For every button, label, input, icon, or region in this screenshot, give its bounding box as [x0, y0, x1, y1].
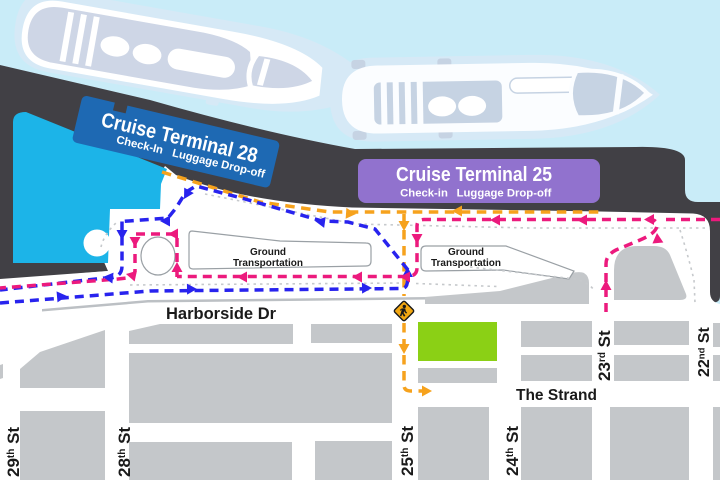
svg-text:Transportation: Transportation — [233, 258, 303, 269]
svg-text:Check-in: Check-in — [400, 188, 448, 200]
svg-text:Harborside Dr: Harborside Dr — [166, 305, 277, 323]
svg-text:The Strand: The Strand — [516, 387, 597, 404]
svg-text:Ground: Ground — [250, 247, 286, 258]
svg-text:Transportation: Transportation — [431, 258, 501, 269]
svg-text:Ground: Ground — [448, 247, 484, 258]
svg-text:Luggage Drop-off: Luggage Drop-off — [457, 188, 552, 200]
svg-text:Cruise Terminal 25: Cruise Terminal 25 — [396, 163, 552, 186]
